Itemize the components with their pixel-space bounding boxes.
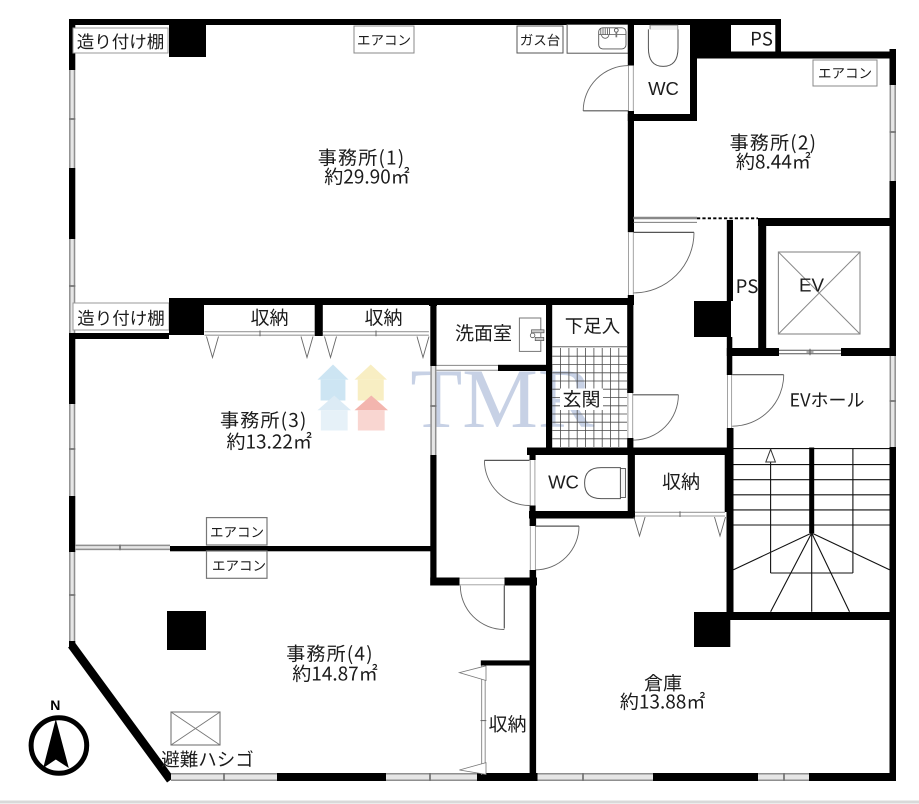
svg-text:EV: EV — [799, 275, 825, 296]
svg-text:WC: WC — [548, 472, 579, 493]
svg-text:WC: WC — [648, 78, 679, 99]
svg-text:N: N — [50, 697, 60, 713]
